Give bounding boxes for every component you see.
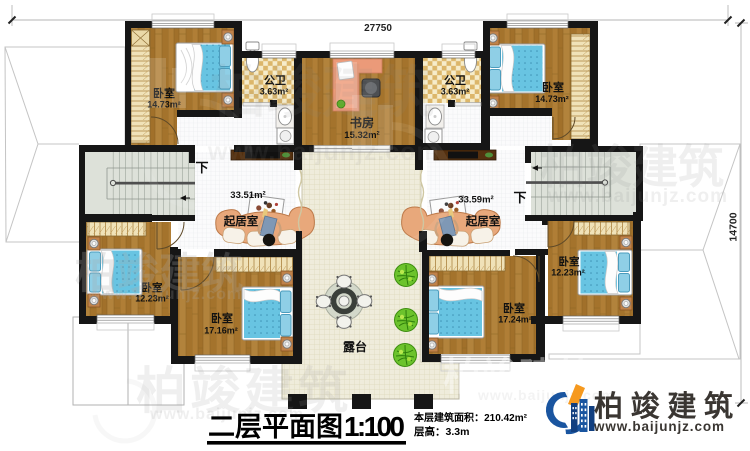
svg-text:下: 下 xyxy=(513,190,526,205)
svg-text:本层建筑面积：210.42m²: 本层建筑面积：210.42m² xyxy=(414,411,528,424)
svg-text:公卫: 公卫 xyxy=(444,74,466,87)
svg-text:17.16m²: 17.16m² xyxy=(204,326,238,336)
svg-text:12.23m²: 12.23m² xyxy=(551,268,585,278)
svg-text:www.baijunjz.com: www.baijunjz.com xyxy=(207,138,440,166)
svg-text:33.59m²: 33.59m² xyxy=(458,195,493,206)
svg-text:1:100: 1:100 xyxy=(344,411,405,442)
svg-text:卧室: 卧室 xyxy=(211,311,233,325)
svg-text:露台: 露台 xyxy=(343,339,367,354)
svg-text:3.63m²: 3.63m² xyxy=(441,87,470,97)
svg-text:卧室: 卧室 xyxy=(559,255,580,268)
svg-text:起居室: 起居室 xyxy=(465,214,501,228)
svg-text:www.baijunjz.com: www.baijunjz.com xyxy=(593,419,724,434)
svg-text:卧室: 卧室 xyxy=(542,80,564,94)
svg-text:柏竣建筑: 柏竣建筑 xyxy=(210,61,434,124)
svg-text:14700: 14700 xyxy=(728,212,740,241)
svg-text:14.73m²: 14.73m² xyxy=(535,94,569,104)
svg-text:27750: 27750 xyxy=(364,23,392,34)
svg-text:起居室: 起居室 xyxy=(223,214,259,228)
svg-text:下: 下 xyxy=(195,160,208,175)
svg-text:17.24m²: 17.24m² xyxy=(498,315,532,325)
svg-text:www.baijunjz.com: www.baijunjz.com xyxy=(87,286,242,303)
svg-text:层高：3.3m: 层高：3.3m xyxy=(414,425,469,438)
svg-text:二层平面图: 二层平面图 xyxy=(208,412,343,442)
svg-text:www.baijunjz.com: www.baijunjz.com xyxy=(547,186,728,207)
svg-text:卧室: 卧室 xyxy=(503,301,525,315)
